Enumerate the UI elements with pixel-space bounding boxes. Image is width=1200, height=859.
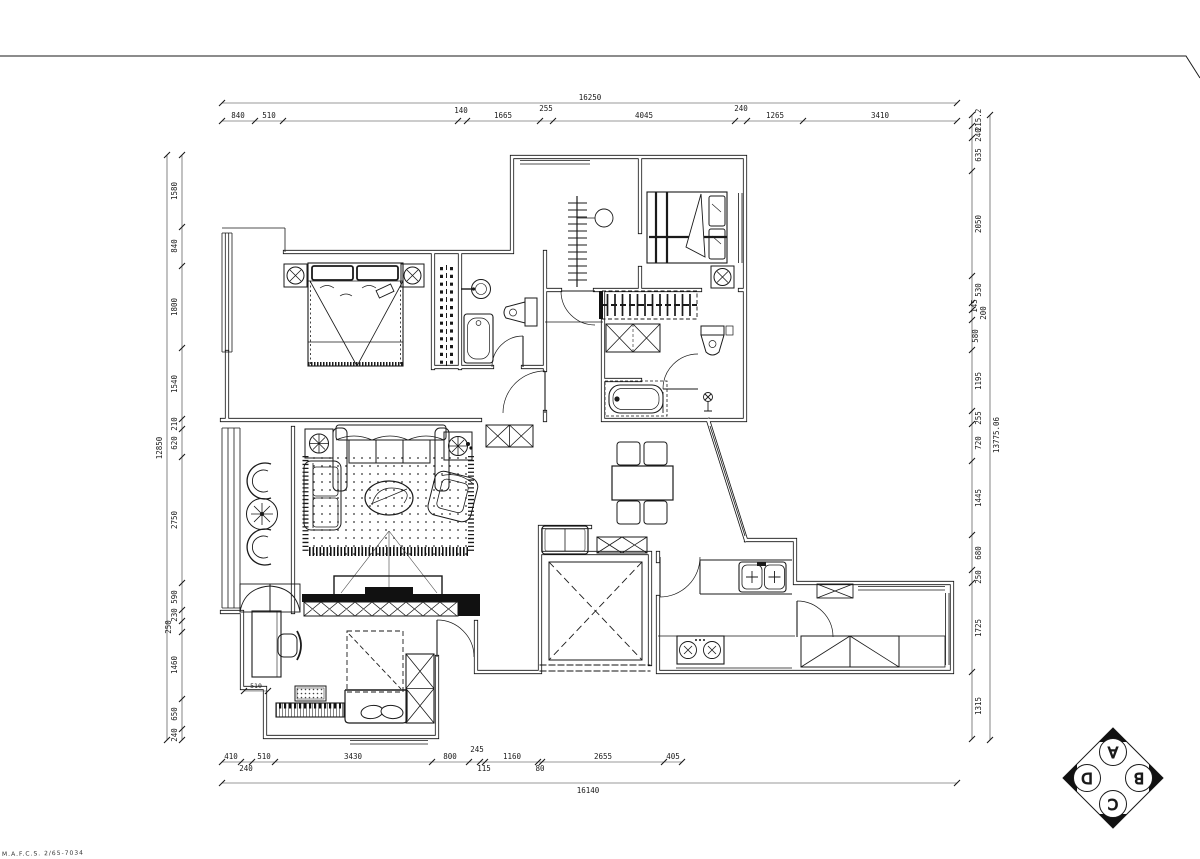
dining-chair <box>644 501 667 524</box>
sheet-stand <box>295 686 326 701</box>
shoe-cabinet <box>606 324 660 352</box>
faucet-symbol <box>757 562 766 566</box>
dim-left-seg: 1460 <box>170 655 179 674</box>
window-bedroom2-right <box>739 193 743 263</box>
window-foyer-top <box>520 161 590 165</box>
dim-right-seg: 1195 <box>974 372 983 390</box>
living-room <box>302 425 480 616</box>
dining-chair <box>617 442 640 465</box>
wash-basin <box>461 280 491 299</box>
dim-left-seg: 210 <box>170 417 179 431</box>
cushion <box>360 704 384 720</box>
dim-right-seg: 240 <box>974 128 983 142</box>
dim-right-overall: 13775.06 <box>992 416 1001 453</box>
entry-door <box>561 291 595 325</box>
desk <box>252 611 281 677</box>
floorplan-sheet: 16250 840 510 140 1665 255 4045 240 1265… <box>0 0 1200 859</box>
dim-left-seg: 1580 <box>170 181 179 200</box>
double-sink <box>739 562 786 592</box>
study-room <box>252 611 434 723</box>
marker-letter-a: A <box>1107 743 1118 761</box>
coat-hanger-rail <box>599 291 697 319</box>
elevator-dashed-wall <box>540 665 650 671</box>
master-bedroom <box>284 263 452 367</box>
marker-letter-d: D <box>1081 769 1093 787</box>
pillow <box>357 266 398 280</box>
nightstand-left <box>284 264 307 287</box>
dim-right-seg: 635 <box>974 148 983 162</box>
wardrobe-hanger-rail <box>442 265 452 367</box>
sideboard-cabinet <box>597 537 647 553</box>
dim-left-overall: 12850 <box>155 436 164 459</box>
dim-left-seg: 230 <box>170 608 179 622</box>
dim-top-seg: 1665 <box>494 111 512 120</box>
master-bath-door <box>492 336 523 367</box>
laundry-cabinets <box>801 636 945 667</box>
dim-bottom-seg: 245 <box>470 745 484 754</box>
dim-left-seg: 1540 <box>170 374 179 393</box>
dim-right-seg: 250 <box>974 570 983 584</box>
counter-bottom <box>658 636 795 668</box>
master-bedroom-door <box>503 371 545 413</box>
dim-bottom-seg: 80 <box>535 764 545 773</box>
dim-right-seg: 2050 <box>974 214 983 233</box>
dim-left-seg: 2750 <box>170 510 179 529</box>
single-bed <box>647 192 727 263</box>
dim-left-seg: 620 <box>170 436 179 450</box>
dim-bottom-seg: 1160 <box>503 752 522 761</box>
bath2-door <box>663 354 698 413</box>
master-bathroom <box>461 280 537 364</box>
dim-right-seg: 1445 <box>974 489 983 507</box>
elevator-shaft <box>549 562 642 660</box>
windows <box>222 161 949 745</box>
dim-right-seg: 1315 <box>974 697 983 715</box>
double-bed <box>308 263 403 366</box>
gas-stove <box>677 636 724 664</box>
window-laundry-top <box>858 587 945 591</box>
side-table-left <box>305 429 333 458</box>
window-dining-diagonal <box>710 426 745 536</box>
study-door <box>437 620 474 657</box>
dim-top-seg: 140 <box>454 106 468 115</box>
dim-right-seg: 200 <box>979 306 988 320</box>
dining-area <box>542 442 673 554</box>
bathtub <box>464 314 493 363</box>
sheet-border <box>0 56 1200 78</box>
dim-bottom-seg: 115 <box>477 764 491 773</box>
round-table-with-plant <box>247 499 278 530</box>
dim-right-seg: 530 <box>974 283 983 297</box>
dim-top-seg: 240 <box>734 104 748 113</box>
dim-left-seg: 590 <box>170 590 179 604</box>
kitchen <box>658 560 795 668</box>
dim-bottom-seg: 3430 <box>344 752 363 761</box>
bathtub2 <box>605 381 667 416</box>
dimension-lines: 16250 840 510 140 1665 255 4045 240 1265… <box>155 93 1001 795</box>
dim-right-seg: 255 <box>974 411 983 425</box>
vent-symbol <box>817 584 853 598</box>
dim-top-seg: 510 <box>262 111 276 120</box>
marker-letter-c: C <box>1108 795 1118 813</box>
dim-top-seg: 1265 <box>766 111 784 120</box>
dim-bottom-seg: 405 <box>666 752 680 761</box>
dim-right-seg: 720 <box>974 436 983 450</box>
dim-left-seg: 240 <box>170 728 179 742</box>
piano <box>276 703 344 717</box>
dim-top-overall: 16250 <box>579 93 602 102</box>
doors <box>437 291 833 657</box>
window-study-bottom <box>350 741 428 745</box>
refrigerator <box>542 526 588 554</box>
sofa-bed <box>345 631 407 723</box>
nightstand-right <box>401 264 424 287</box>
pillow <box>312 266 353 280</box>
phone-on-bed <box>376 284 394 298</box>
corner-note: M.A.F.C.S. 2/65-7034 <box>2 850 84 858</box>
toilet2 <box>701 326 733 355</box>
dim-left-seg: 1800 <box>170 297 179 316</box>
ceiling-lamp-symbol <box>595 209 613 227</box>
dim-right-seg: 215.2 <box>974 109 983 132</box>
pillow <box>709 229 725 259</box>
dining-chair <box>644 442 667 465</box>
marker-letter-b: B <box>1134 769 1144 787</box>
dining-chair <box>617 501 640 524</box>
window-living-balcony <box>222 428 240 608</box>
kitchen-door <box>660 557 700 597</box>
nightstand <box>711 266 734 288</box>
dim-top-seg: 3410 <box>871 111 890 120</box>
plant-symbol <box>466 442 470 446</box>
dining-table <box>612 466 673 500</box>
dim-top-seg: 4045 <box>635 111 653 120</box>
floorplan-drawing: 16250 840 510 140 1665 255 4045 240 1265… <box>0 0 1200 859</box>
dim-right-seg: 145 <box>970 299 979 313</box>
dim-right-seg: 580 <box>971 329 980 343</box>
floor-drain-symbol <box>704 393 713 412</box>
curved-chair <box>247 529 271 565</box>
dim-bottom-seg: 2655 <box>594 752 612 761</box>
dim-top-seg: 840 <box>231 111 245 120</box>
dim-left-seg: 250 <box>164 620 173 634</box>
radiator-symbol <box>568 196 587 287</box>
curved-chair <box>247 463 271 499</box>
dim-left-seg: 650 <box>170 707 179 721</box>
laundry-balcony <box>801 584 945 667</box>
window-master-balcony <box>222 228 285 352</box>
dim-right-seg: 680 <box>974 546 983 560</box>
wardrobe-study <box>406 654 434 723</box>
hall-cabinet <box>486 425 533 447</box>
interior-elevation-marker: A B C D <box>1063 728 1163 828</box>
dim-bottom-seg: 510 <box>257 752 271 761</box>
toilet <box>504 298 537 326</box>
dim-study-niche: 510 <box>250 682 262 690</box>
dim-bottom-seg: 410 <box>224 752 238 761</box>
pillow <box>709 196 725 226</box>
bedroom2 <box>568 192 734 288</box>
blanket-fold <box>686 194 705 257</box>
dim-bottom-seg: 800 <box>443 752 457 761</box>
dim-bottom-seg: 240 <box>239 764 253 773</box>
dim-top-seg: 255 <box>539 104 553 113</box>
window-laundry-right <box>946 593 950 665</box>
dim-right-seg: 1725 <box>974 619 983 637</box>
laundry-door <box>797 601 833 637</box>
dim-left-seg: 840 <box>170 239 179 253</box>
walls <box>222 157 952 737</box>
tv-feature-wall <box>302 594 480 616</box>
dim-bottom-overall: 16140 <box>577 786 600 795</box>
cushion <box>380 704 403 719</box>
television <box>365 587 413 594</box>
